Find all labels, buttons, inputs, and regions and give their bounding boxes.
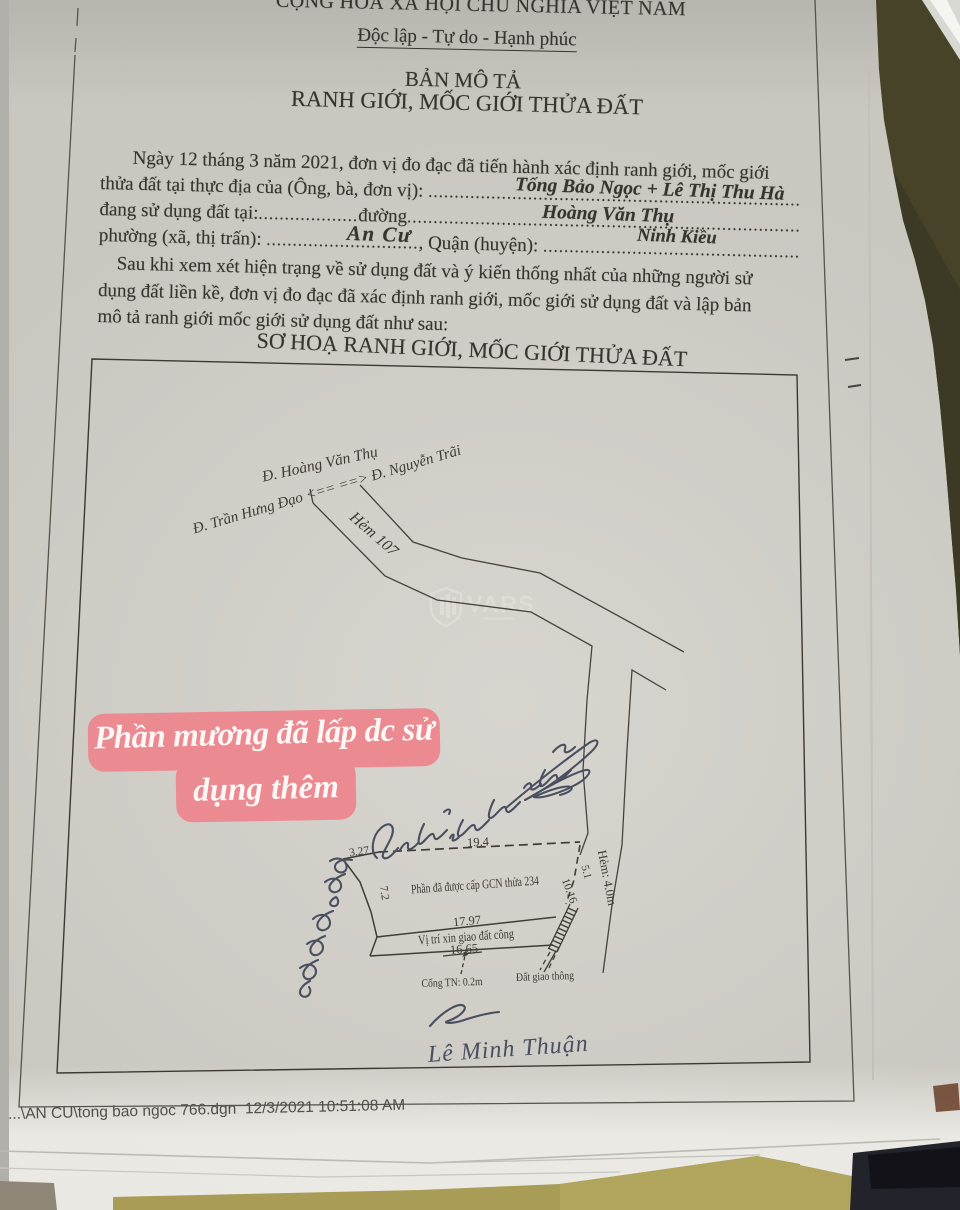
svg-text:19.4: 19.4 [467,834,490,849]
svg-text:Hẻm 107: Hẻm 107 [345,508,402,560]
svg-text:Cống TN: 0.2m: Cống TN: 0.2m [421,975,482,990]
svg-text:VARS: VARS [467,591,535,617]
svg-text:3.27: 3.27 [348,845,370,860]
svg-text:Đất giao thông: Đất giao thông [516,969,575,984]
svg-text:Hẻm: 4.0m: Hẻm: 4.0m [595,849,620,907]
svg-text:17.97: 17.97 [452,913,481,929]
svg-text:Phần đã được cấp GCN thửa 234: Phần đã được cấp GCN thửa 234 [411,873,540,897]
svg-text:10.16: 10.16 [559,877,579,906]
svg-text:5.1: 5.1 [578,864,593,880]
svg-text:7.2: 7.2 [377,885,391,901]
svg-text:Lê Minh Thuận: Lê Minh Thuận [426,1031,589,1068]
